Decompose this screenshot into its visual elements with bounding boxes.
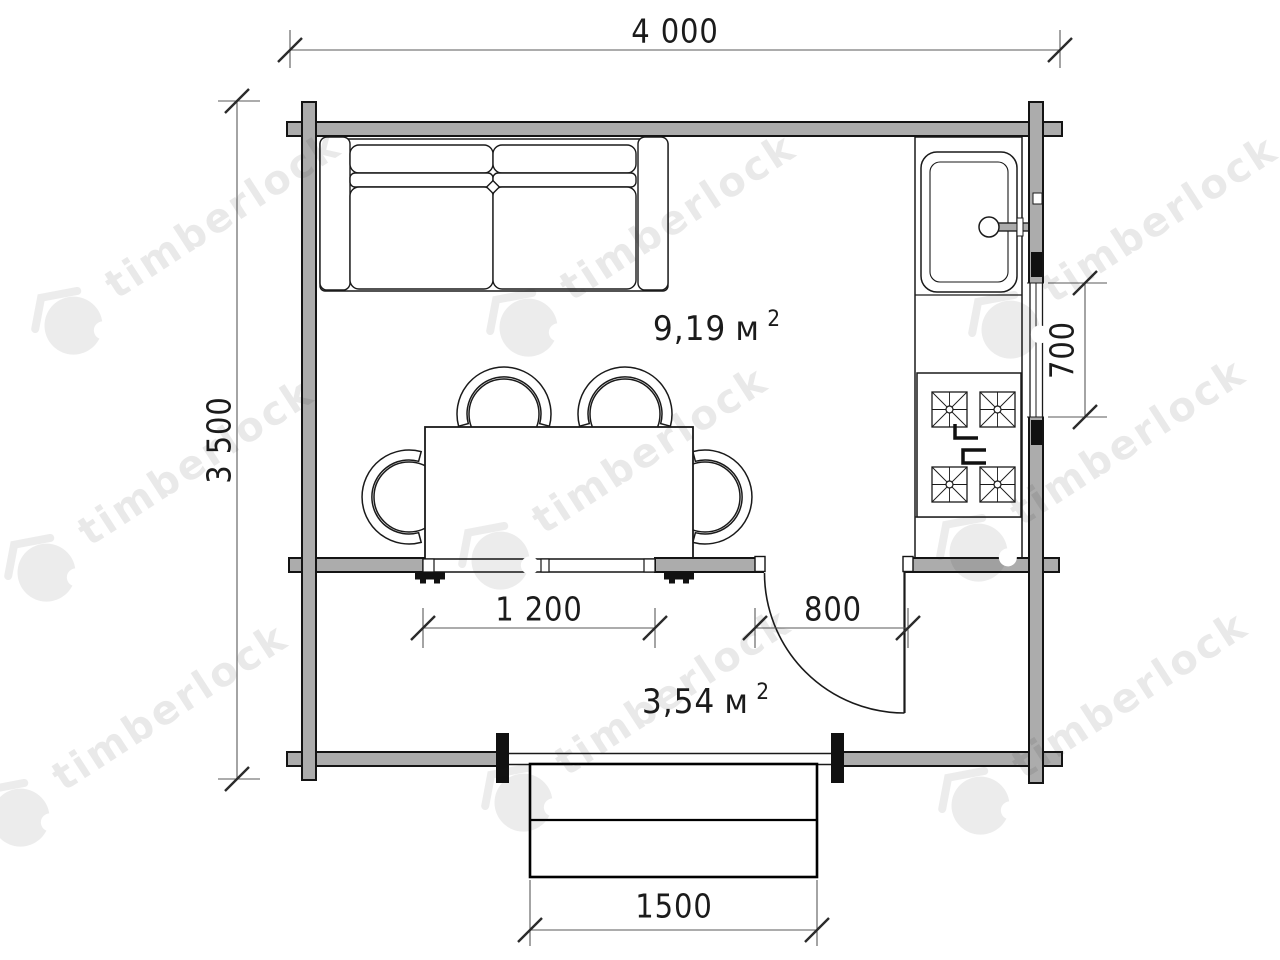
door-swing-arc (765, 573, 905, 713)
wall-top (287, 122, 1062, 136)
dimension-side-window (1048, 271, 1107, 429)
window-sill-marks (415, 573, 694, 584)
wall-bottom-left (287, 752, 508, 766)
porch-post-left (496, 733, 509, 783)
front-window (415, 559, 694, 584)
sofa (320, 137, 668, 291)
porch-steps (496, 733, 844, 877)
dimension-door (743, 608, 920, 648)
dimension-porch (518, 880, 829, 946)
plan-canvas (0, 0, 1280, 960)
dimension-overall-width (278, 30, 1072, 68)
porch-post-right (831, 733, 844, 783)
wall-left (302, 102, 316, 780)
door (755, 557, 913, 714)
floor-plan: 4 000 3 500 1 200 800 700 1500 9,19м2 3,… (0, 0, 1280, 960)
dining-table (425, 427, 693, 561)
kitchen-sink (921, 152, 1017, 292)
dimension-overall-depth (218, 89, 260, 791)
front-wall-mid (655, 558, 763, 572)
dimension-front-window (411, 608, 667, 648)
stove (917, 373, 1021, 517)
